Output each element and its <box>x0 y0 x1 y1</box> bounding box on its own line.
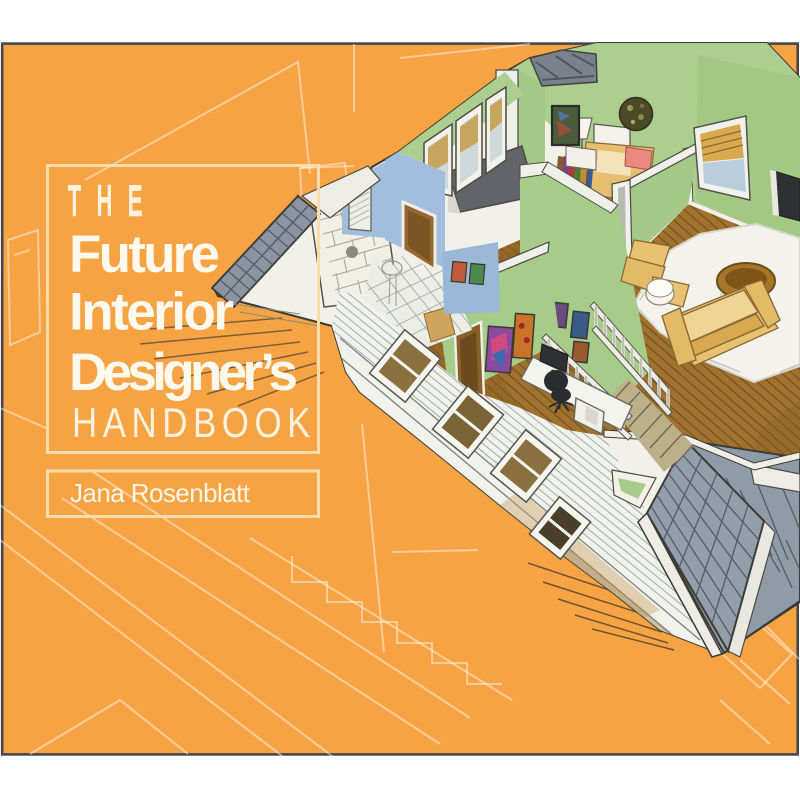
svg-text:HANDBOOK: HANDBOOK <box>72 400 316 447</box>
svg-text:Jana Rosenblatt: Jana Rosenblatt <box>70 478 251 508</box>
svg-text:Future: Future <box>69 225 220 284</box>
svg-text:THE: THE <box>68 178 158 225</box>
svg-text:Interior: Interior <box>69 283 234 342</box>
svg-text:Designer’s: Designer’s <box>69 343 298 402</box>
